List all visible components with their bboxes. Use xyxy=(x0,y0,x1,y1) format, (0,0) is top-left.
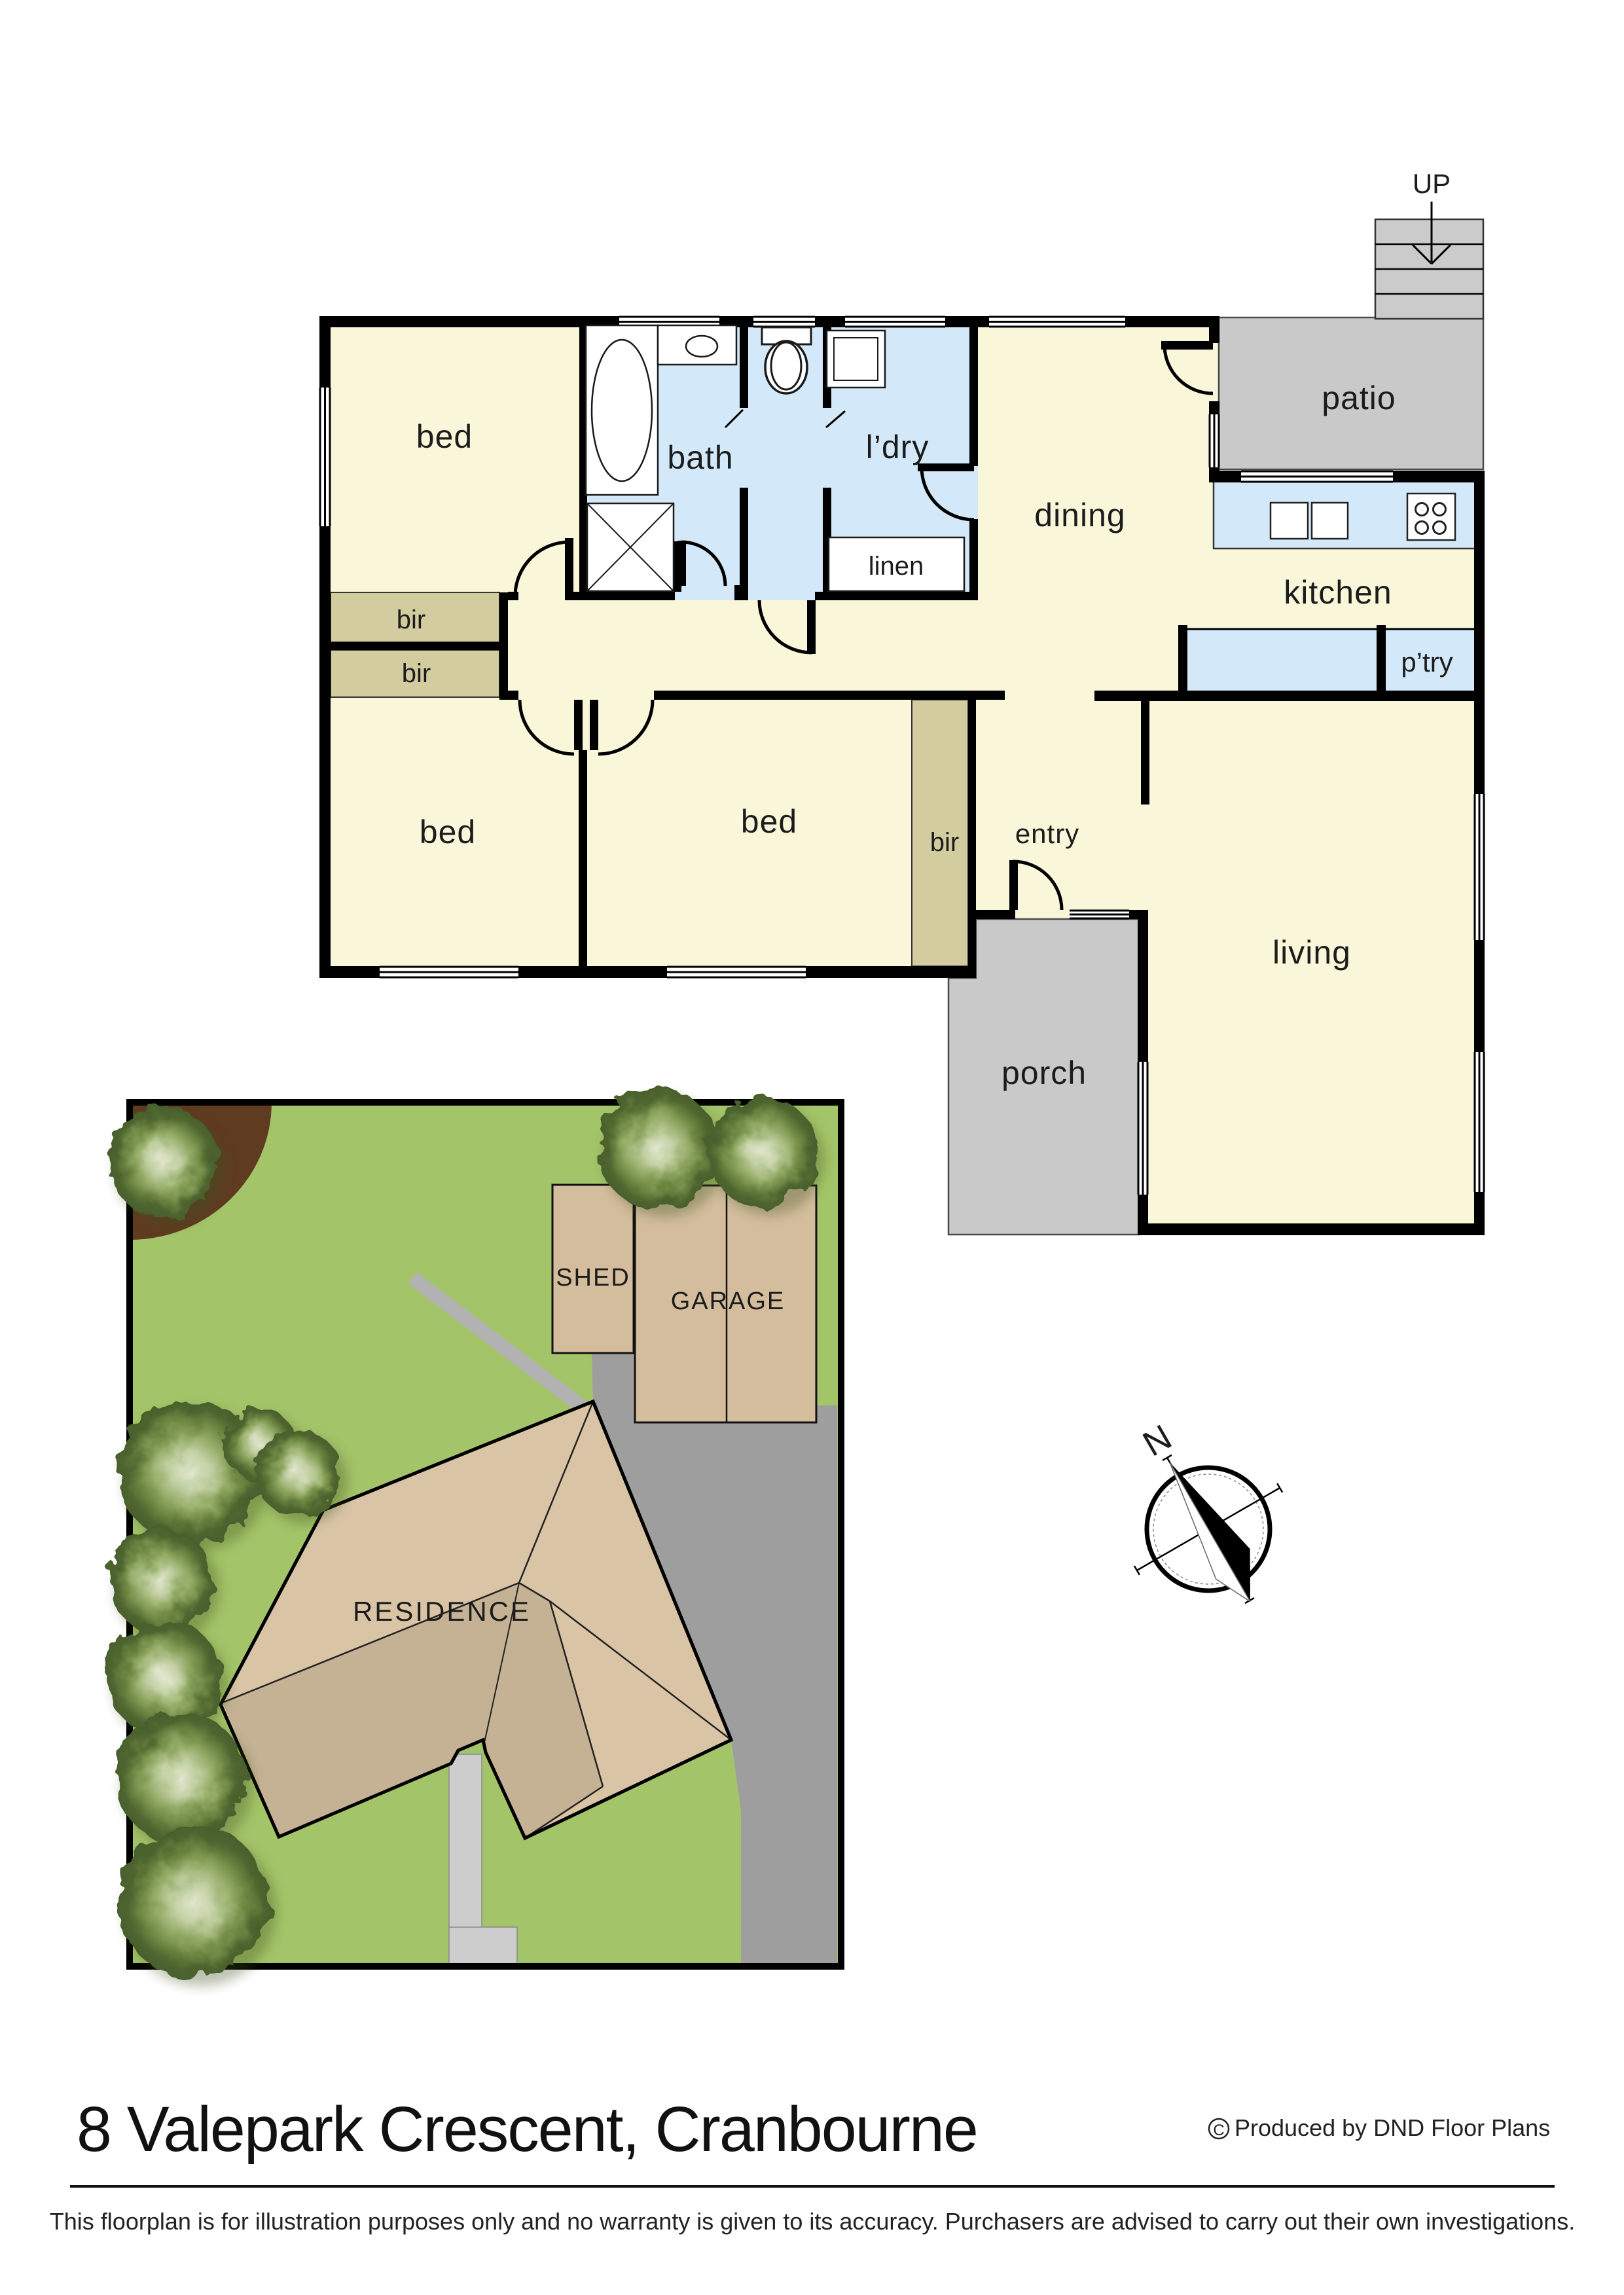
svg-text:bir: bir xyxy=(930,828,959,857)
svg-text:bed: bed xyxy=(741,803,797,840)
svg-text:GARAGE: GARAGE xyxy=(671,1288,785,1315)
svg-text:This floorplan is for illustra: This floorplan is for illustration purpo… xyxy=(50,2208,1575,2235)
svg-text:dining: dining xyxy=(1034,497,1125,533)
svg-text:porch: porch xyxy=(1001,1055,1087,1091)
svg-text:UP: UP xyxy=(1413,168,1451,199)
svg-text:bath: bath xyxy=(667,439,733,476)
svg-text:bed: bed xyxy=(416,418,473,455)
svg-text:living: living xyxy=(1272,934,1351,971)
svg-text:linen: linen xyxy=(869,552,924,581)
svg-text:8 Valepark Crescent, Cranbourn: 8 Valepark Crescent, Cranbourne xyxy=(77,2093,977,2165)
svg-text:entry: entry xyxy=(1015,818,1079,849)
svg-text:l’dry: l’dry xyxy=(866,429,929,465)
svg-text:bir: bir xyxy=(402,659,431,688)
svg-text:patio: patio xyxy=(1322,380,1396,416)
svg-text:p’try: p’try xyxy=(1401,647,1453,678)
svg-text:bir: bir xyxy=(397,605,425,634)
svg-text:Produced by DND Floor Plans: Produced by DND Floor Plans xyxy=(1235,2114,1550,2141)
svg-text:RESIDENCE: RESIDENCE xyxy=(353,1596,531,1627)
svg-text:bed: bed xyxy=(420,814,476,850)
svg-text:SHED: SHED xyxy=(556,1264,630,1292)
svg-text:C: C xyxy=(1213,2122,1224,2139)
svg-text:kitchen: kitchen xyxy=(1284,574,1392,611)
